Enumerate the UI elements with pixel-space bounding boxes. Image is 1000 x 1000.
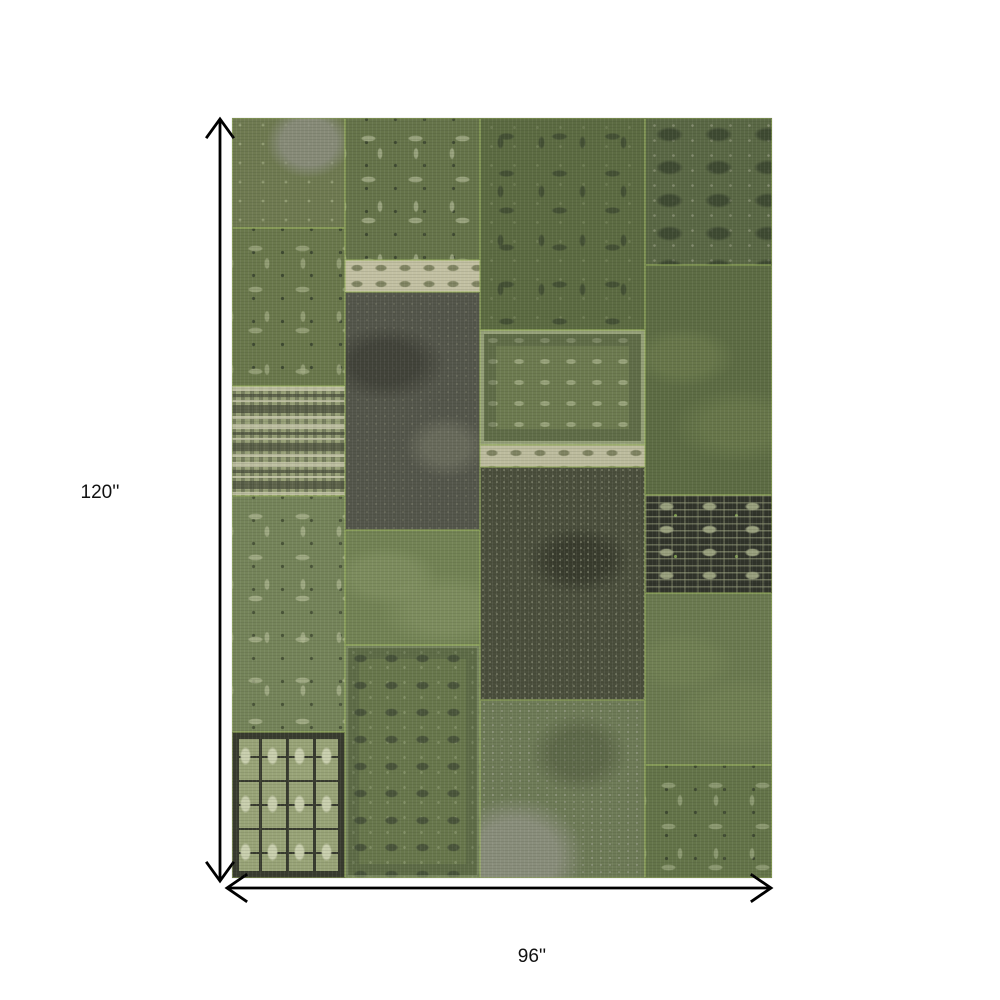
patch-left-kilim-bands xyxy=(232,386,345,496)
patch-center-bordered-floral xyxy=(480,330,645,445)
patch-right-floral-tracery xyxy=(645,765,772,878)
patch-left-turkmen-geometric xyxy=(232,732,345,878)
width-dimension-arrow xyxy=(227,875,771,901)
patch-left-floral-light xyxy=(232,496,345,732)
patch-right-tribal-dark xyxy=(645,495,772,593)
patch-mid-cream-border xyxy=(345,260,480,292)
patch-right-plain-dark xyxy=(645,265,772,495)
patch-right-ornate-dark xyxy=(645,118,772,265)
patch-center-cream-strip xyxy=(480,445,645,467)
patch-center-dark-speckled xyxy=(480,467,645,700)
patch-center-mottled-gray xyxy=(480,700,645,878)
height-dimension-label: 120'' xyxy=(58,483,142,502)
patch-right-plain-green xyxy=(645,593,772,765)
patch-left-floral xyxy=(232,228,345,385)
width-dimension-label: 96'' xyxy=(490,947,574,966)
patch-mid-dark-gray xyxy=(345,292,480,530)
height-dimension-arrow xyxy=(207,119,233,881)
patch-top-left-worn xyxy=(232,118,345,228)
patch-mid-plain-green xyxy=(345,530,480,645)
product-dimension-diagram: 120'' 96'' xyxy=(0,0,1000,1000)
patch-mid-ornate-bordered xyxy=(345,645,480,878)
patch-mid-floral-scroll xyxy=(345,118,480,260)
rug-patches xyxy=(232,118,772,878)
patch-center-dark-tracery xyxy=(480,118,645,330)
